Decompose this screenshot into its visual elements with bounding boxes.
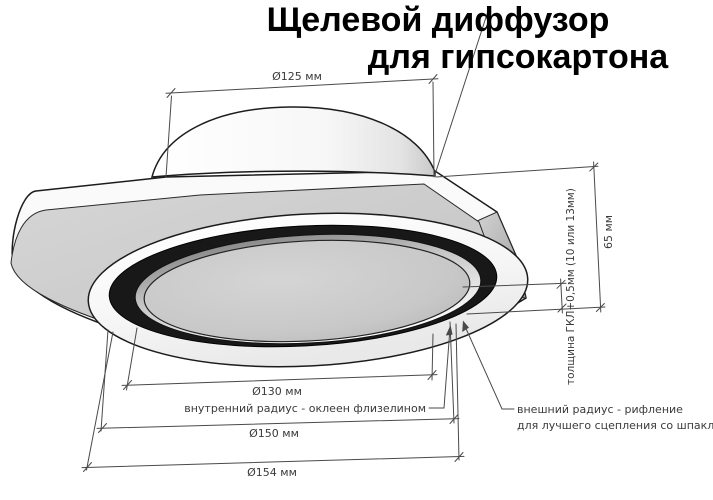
outer-radius-label-line1: внешний радиус - рифление [517,403,683,416]
drawing-title-line1: Щелевой диффузор [267,1,610,39]
dim150-ext-left [101,330,108,431]
dim125-ext-right [433,82,434,177]
dim154-label: Ø154 мм [247,466,297,479]
dim150-label: Ø150 мм [249,427,299,440]
drawing-svg: Щелевой диффузор для гипсокартона Ø125 м… [0,0,713,500]
drawing-title-line2: для гипсокартона [368,38,669,76]
inner-radius-label: внутренний радиус - оклеен флизелином [184,402,426,415]
dim65-ext-top [436,166,598,177]
outer-radius-label-line2: для лучшего сцепления со шпаклёвкой [517,419,713,432]
dim130-line [122,375,437,386]
outer-radius-leader [464,323,515,409]
dim65-line [594,162,601,312]
duct-collar [152,107,435,177]
dim154-ext-left [87,332,114,470]
thickness-label: толщина ГКЛ+0,5мм (10 или 13мм) [565,188,577,385]
dim154-ext-right [456,324,459,460]
dim130-label: Ø130 мм [252,385,302,398]
dim125-label: Ø125 мм [272,70,322,83]
diffuser-3d-view [11,107,532,377]
dim65-label: 65 мм [602,215,615,249]
technical-drawing-slot-diffuser: Щелевой диффузор для гипсокартона Ø125 м… [0,0,713,500]
